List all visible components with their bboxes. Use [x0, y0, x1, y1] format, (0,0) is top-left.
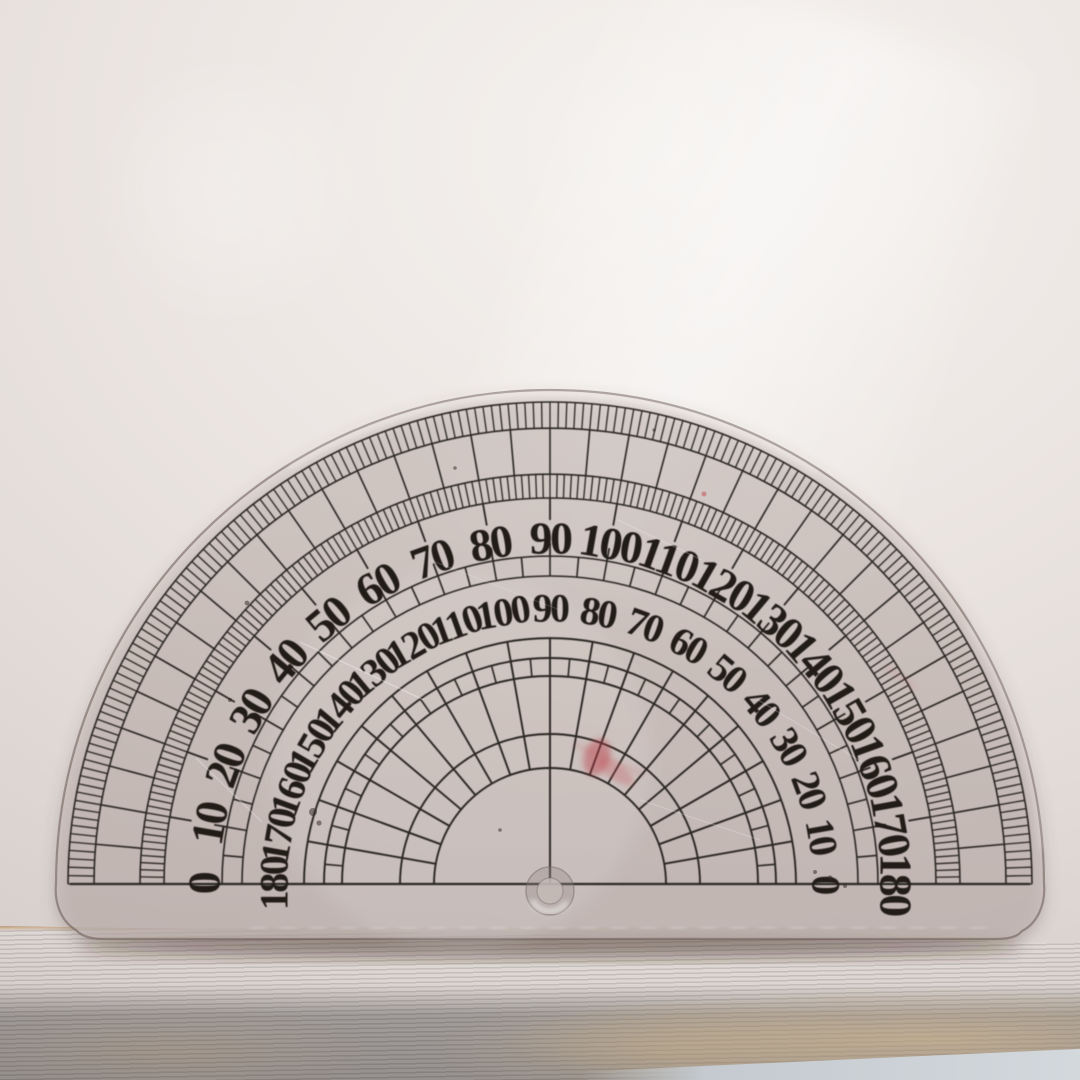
- dust-speck: [309, 808, 317, 816]
- red-speck: [702, 492, 707, 497]
- dust-speck: [498, 828, 502, 832]
- outer-scale-label: 90: [530, 513, 573, 564]
- outer-scale-label: 0: [179, 872, 230, 894]
- outer-scale-label: 170: [860, 789, 921, 860]
- dust-speck: [245, 601, 250, 606]
- dust-speck: [813, 870, 817, 874]
- dust-speck: [453, 466, 457, 470]
- dust-speck: [652, 428, 655, 431]
- dust-speck: [316, 820, 321, 825]
- dust-speck: [843, 884, 847, 888]
- dust-speck: [228, 698, 232, 702]
- outer-scale-label: 180: [870, 853, 921, 916]
- inner-scale-label: 0: [803, 875, 848, 894]
- protractor: 0102030405060708090100110120130140150160…: [0, 0, 1080, 1080]
- photo-scene: 0102030405060708090100110120130140150160…: [0, 0, 1080, 1080]
- inner-scale-label: 90: [533, 586, 570, 631]
- center-hole: [526, 867, 574, 915]
- dust-speck: [827, 875, 832, 880]
- inner-scale-label: 100: [472, 585, 533, 639]
